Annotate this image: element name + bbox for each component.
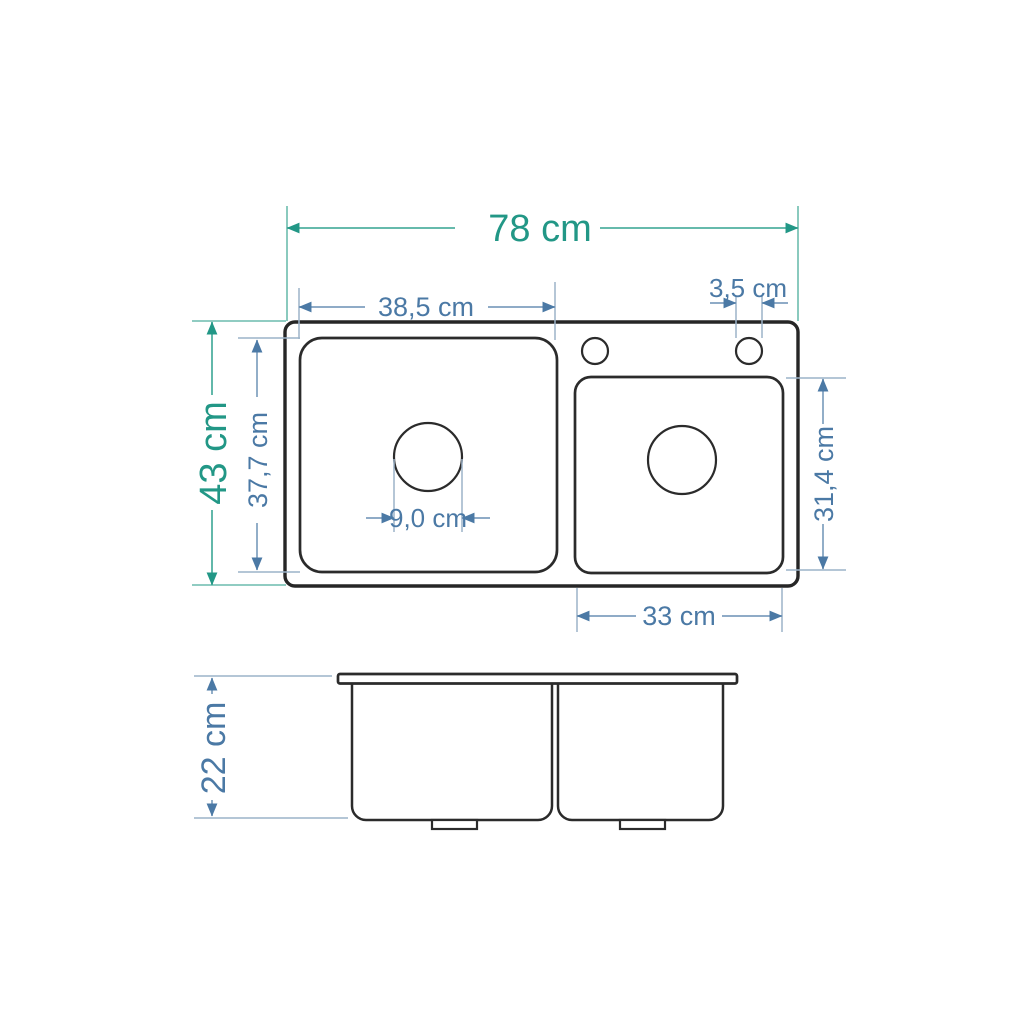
dimension-label: 78 cm [488,208,591,250]
left-drain-stub [432,820,477,829]
front-view [338,674,737,829]
dim-right-bowl-width: 33 cm [577,588,782,632]
dimension-label: 37,7 cm [243,412,273,508]
front-right-bowl [558,684,723,820]
dimension-label: 31,4 cm [809,426,839,522]
dimension-label: 38,5 cm [378,292,474,322]
faucet-hole-right-icon [736,338,762,364]
dim-sink-height: 22 cm [194,676,348,818]
dimension-label: 3,5 cm [709,273,787,303]
dimension-label: 9,0 cm [389,503,467,533]
diagram-canvas: 78 cm 38,5 cm 3,5 cm 43 cm [0,0,1024,1024]
dimension-label: 33 cm [642,601,716,631]
top-view [285,322,798,586]
dimension-label: 22 cm [195,702,233,795]
sink-rim [338,674,737,684]
faucet-hole-left-icon [582,338,608,364]
front-left-bowl [352,684,552,820]
sink-dimension-diagram: 78 cm 38,5 cm 3,5 cm 43 cm [0,0,1024,1024]
right-drain-stub [620,820,665,829]
left-drain-hole-icon [394,423,462,491]
dimension-label: 43 cm [193,401,235,504]
right-drain-hole-icon [648,426,716,494]
